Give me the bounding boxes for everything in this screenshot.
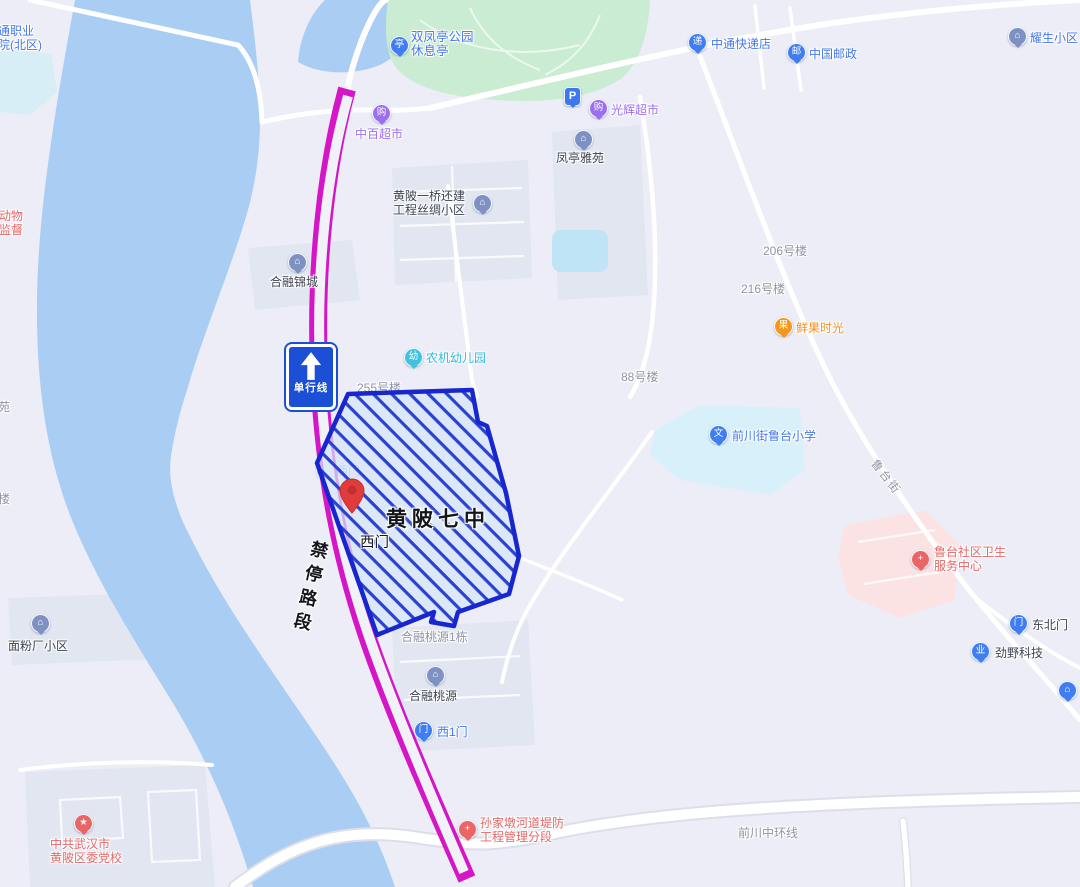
- poi-nongji-label[interactable]: 农机幼儿园: [426, 351, 486, 365]
- xianguo-fruitshop-icon[interactable]: 果: [774, 317, 793, 336]
- zhongbai-supermarket-icon[interactable]: 购: [372, 104, 391, 123]
- sunjia-dike-icon[interactable]: +: [458, 820, 477, 839]
- park-rest-pavilion-icon[interactable]: 亭: [390, 36, 409, 55]
- building-label-88: 88号楼: [621, 370, 658, 384]
- poi-lutai-school-label[interactable]: 前川街鲁台小学: [732, 429, 816, 443]
- school-name-label: 黄陂七中: [386, 503, 490, 533]
- dangxiao-party-school-icon[interactable]: ★: [74, 814, 93, 833]
- poi-jinye-label[interactable]: 劲野科技: [995, 646, 1043, 660]
- jinye-tech-icon[interactable]: 业: [971, 642, 990, 661]
- street-label-qianchuan: 前川中环线: [738, 826, 798, 840]
- poi-sunjia-label[interactable]: 孙家墩河道堤防工程管理分段: [480, 816, 564, 844]
- herong-taoyuan-icon[interactable]: ⌂: [426, 666, 445, 685]
- edge-label-lou: 楼: [0, 492, 10, 506]
- poi-herong-jincheng-label[interactable]: 合融锦城: [270, 275, 318, 289]
- poi-zhongbai-label[interactable]: 中百超市: [355, 127, 403, 141]
- northeast-gate-icon[interactable]: 门: [1009, 614, 1028, 633]
- china-post-icon[interactable]: 邮: [787, 43, 806, 62]
- poi-yaosheng-label[interactable]: 耀生小区: [1030, 31, 1078, 45]
- partial-poi-icon[interactable]: ⌂: [1058, 681, 1077, 700]
- yaosheng-residence-icon[interactable]: ⌂: [1008, 27, 1027, 46]
- west1-gate-icon[interactable]: 门: [414, 721, 433, 740]
- no-parking-label: 禁停路段: [287, 538, 333, 639]
- poi-zhongtong-label[interactable]: 中通快递店: [711, 37, 771, 51]
- poi-fengting-label[interactable]: 凤亭雅苑: [556, 151, 604, 165]
- poi-animal-label[interactable]: 动物监督: [0, 209, 23, 237]
- poi-west1-gate-label[interactable]: 西1门: [437, 725, 468, 739]
- herong-jincheng-icon[interactable]: ⌂: [288, 253, 307, 272]
- zhongtong-express-icon[interactable]: 递: [688, 33, 707, 52]
- map-canvas[interactable]: 255号楼 门 西门 黄陂七中 西门 禁停路段: [0, 0, 1080, 887]
- poi-college-label[interactable]: 通职业院(北区): [0, 24, 42, 52]
- building-label-206: 206号楼: [763, 244, 807, 258]
- poi-park-label[interactable]: 双凤亭公园休息亭: [411, 30, 474, 58]
- poi-guanghui-label[interactable]: 光辉超市: [611, 103, 659, 117]
- poi-northeast-gate-label[interactable]: 东北门: [1032, 618, 1068, 632]
- parking-icon[interactable]: P: [564, 87, 581, 106]
- nongji-kindergarten-icon[interactable]: 幼: [404, 348, 423, 367]
- street-label-lutai: 鲁台街: [867, 456, 905, 498]
- poi-health-center-label[interactable]: 鲁台社区卫生服务中心: [934, 545, 1006, 573]
- guanghui-supermarket-icon[interactable]: 购: [589, 99, 608, 118]
- building-label-216: 216号楼: [741, 282, 785, 296]
- one-way-sign: 单行线: [286, 344, 336, 410]
- poi-dangxiao-label[interactable]: 中共武汉市黄陂区委党校: [50, 837, 122, 865]
- west-gate-label: 西门: [360, 531, 389, 552]
- sichou-residence-icon[interactable]: ⌂: [473, 194, 492, 213]
- one-way-sign-text: 单行线: [289, 382, 333, 394]
- lutai-primary-school-icon[interactable]: 文: [709, 425, 728, 444]
- building-label-taoyuan1: 合融桃源1栋: [401, 630, 468, 644]
- health-center-icon[interactable]: +: [911, 550, 930, 569]
- mianfen-residence-icon[interactable]: ⌂: [31, 614, 50, 633]
- poi-herong-taoyuan-label[interactable]: 合融桃源: [409, 689, 457, 703]
- fengting-residence-icon[interactable]: ⌂: [574, 130, 593, 149]
- edge-label-yuan: 苑: [0, 400, 10, 414]
- up-arrow-icon: [299, 350, 323, 382]
- poi-sichou-label[interactable]: 黄陂一桥还建工程丝绸小区: [393, 189, 465, 217]
- poi-mianfen-label[interactable]: 面粉厂小区: [8, 639, 68, 653]
- poi-post-label[interactable]: 中国邮政: [809, 47, 857, 61]
- poi-xianguo-label[interactable]: 鲜果时光: [796, 321, 844, 335]
